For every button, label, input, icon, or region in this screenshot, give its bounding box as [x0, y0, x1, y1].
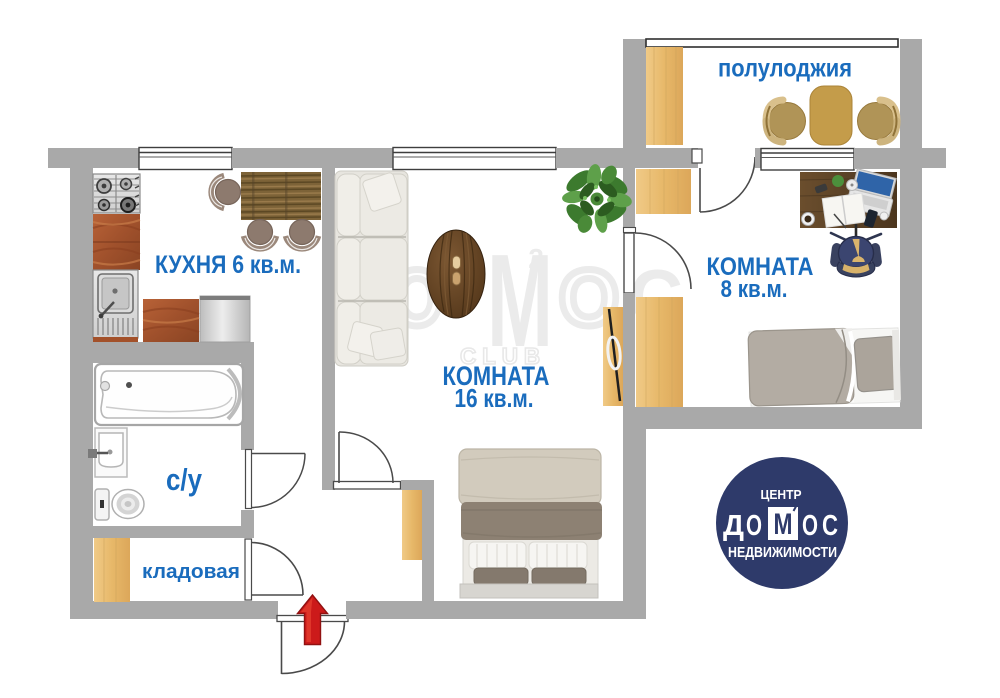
svg-text:М: М — [774, 508, 793, 541]
svg-text:КУХНЯ 6 кв.м.: КУХНЯ 6 кв.м. — [155, 251, 301, 279]
svg-text:Д: Д — [723, 510, 744, 542]
svg-text:ЦЕНТР: ЦЕНТР — [761, 487, 802, 502]
svg-text:О: О — [746, 510, 762, 542]
svg-text:НЕДВИЖИМОСТИ: НЕДВИЖИМОСТИ — [728, 544, 837, 561]
svg-text:16 кв.м.: 16 кв.м. — [455, 383, 534, 413]
svg-text:кладовая: кладовая — [142, 561, 240, 583]
svg-text:полулоджия: полулоджия — [718, 55, 852, 83]
svg-text:2: 2 — [528, 243, 544, 274]
svg-text:8 кв.м.: 8 кв.м. — [721, 276, 788, 303]
svg-text:с/у: с/у — [166, 462, 203, 497]
svg-text:С: С — [822, 510, 838, 542]
svg-text:О: О — [802, 510, 818, 542]
